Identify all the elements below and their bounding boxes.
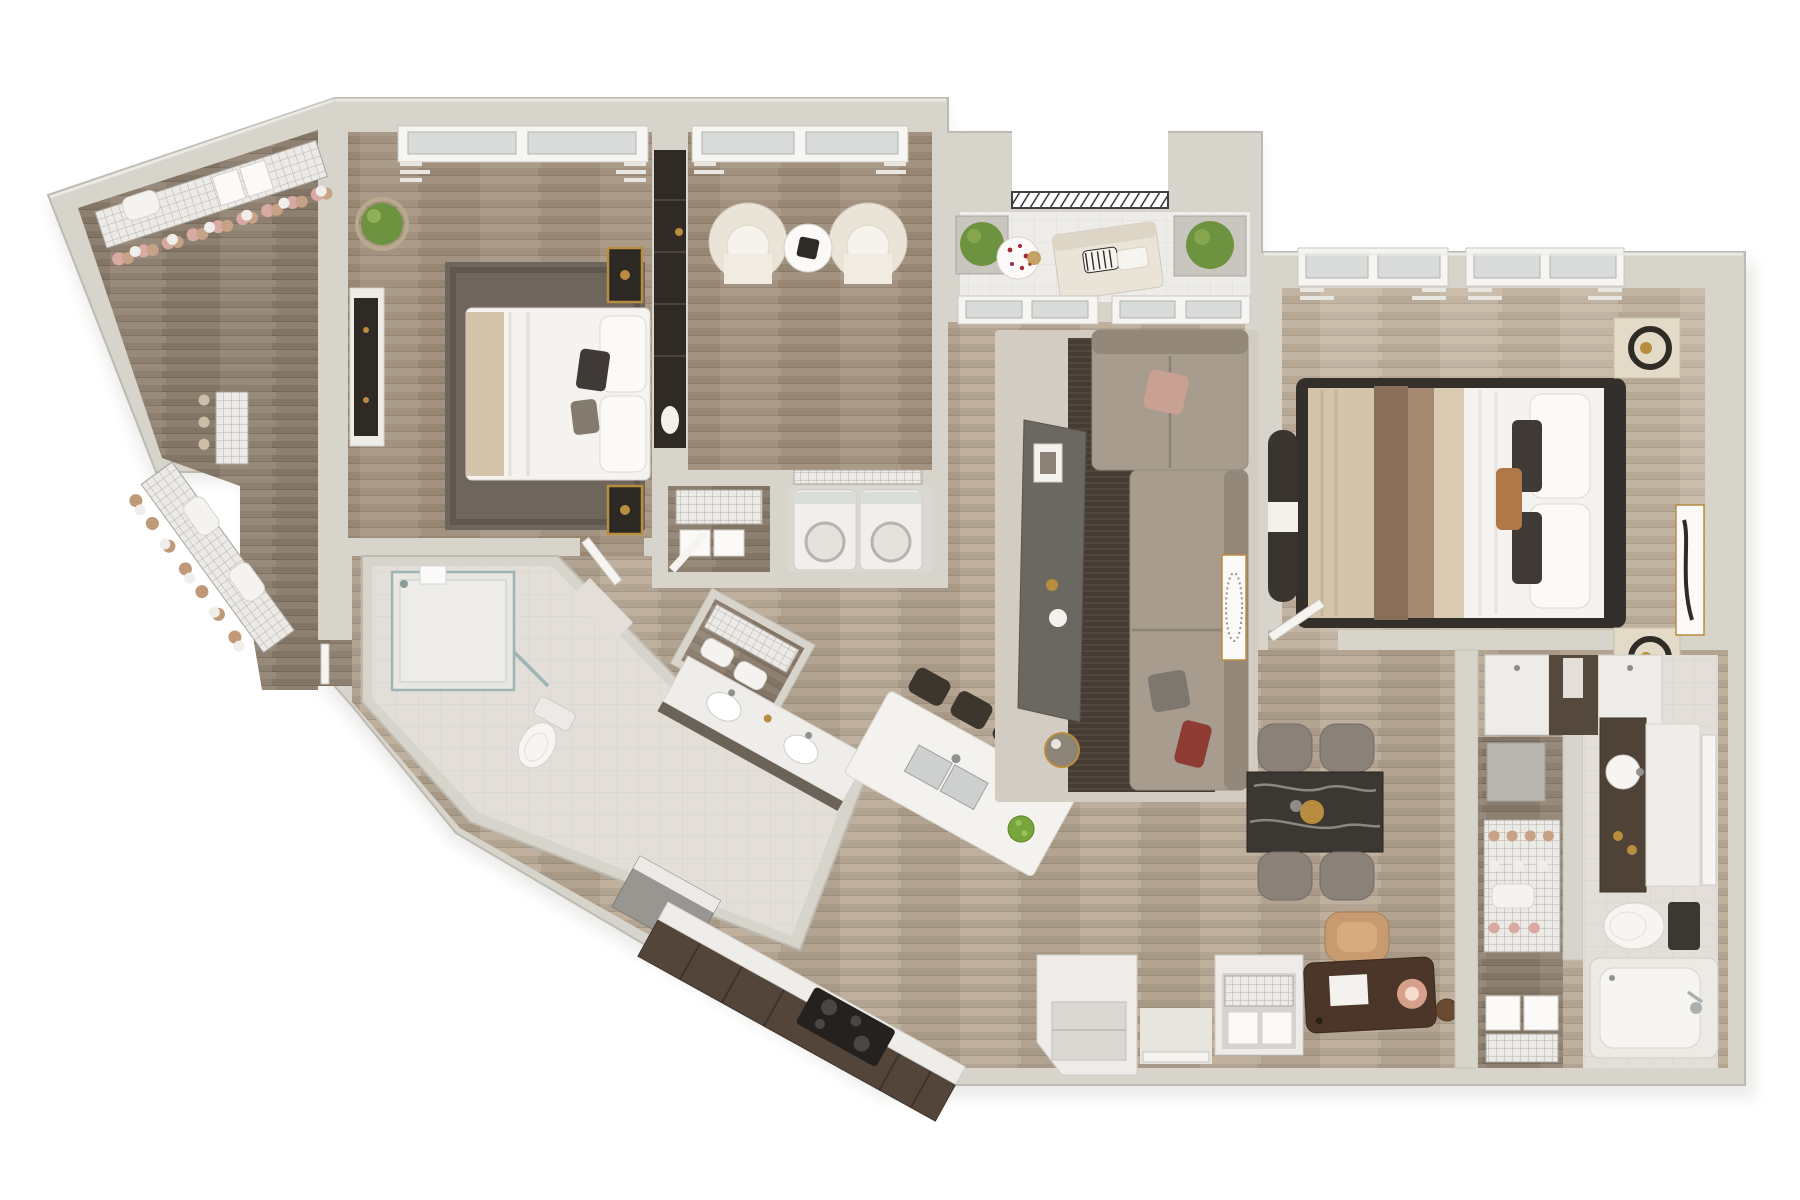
loveseat-cushion	[1117, 247, 1149, 271]
washer	[794, 490, 856, 570]
storage-box-b	[714, 530, 744, 556]
bath2-vanity	[1600, 718, 1716, 892]
utility-gray-box	[1487, 743, 1545, 801]
tub-drain	[1609, 975, 1615, 981]
wardrobe-decor	[661, 406, 679, 434]
right-service-block	[1455, 650, 1718, 1068]
closet2-drawer-2	[1524, 996, 1558, 1030]
bed1-accent-pillow-1	[575, 348, 610, 392]
dining-chair-top-left	[1258, 724, 1312, 772]
console-decor-gold	[1046, 579, 1058, 591]
bench-throw	[1268, 502, 1298, 532]
dining-centerpiece	[1300, 800, 1324, 824]
balcony-shrub-right	[1186, 221, 1234, 269]
desk-chair-seat	[1337, 922, 1377, 952]
dryer-door	[872, 523, 910, 561]
bed1-foot-throw	[466, 312, 504, 476]
bedroom2-framed-art	[1676, 505, 1704, 635]
vanity2-soap-1	[1613, 831, 1623, 841]
cabinet-b-knob	[1627, 665, 1633, 671]
bedroom1-media-dresser	[354, 298, 378, 436]
decor-bowl	[1027, 251, 1041, 265]
vanity2-round-sink	[1606, 755, 1640, 789]
toilet2-tank	[1668, 902, 1700, 950]
tub-faucet	[1690, 1002, 1702, 1014]
leaning-art	[1222, 555, 1246, 660]
potted-plant	[361, 203, 403, 245]
closet-right-drawer-1	[1228, 1012, 1258, 1044]
dryer	[860, 490, 922, 570]
washer-controls	[794, 492, 856, 504]
bed2-satin-throw-1	[1374, 386, 1408, 620]
console-decor-bowl	[1049, 609, 1067, 627]
living-room	[958, 296, 1258, 802]
toilet2-bowl	[1604, 903, 1664, 949]
media-console	[1018, 420, 1086, 722]
dining-chair-bottom-right	[1320, 852, 1374, 900]
sofa-back-top	[1092, 330, 1248, 354]
dining-chair-bottom-left	[1258, 852, 1312, 900]
floor-plan-rendering	[0, 0, 1800, 1200]
shrub-highlight	[967, 229, 981, 243]
chair-front	[724, 254, 772, 284]
bed2-rust-pillow	[1496, 468, 1522, 530]
plant-highlight	[367, 209, 381, 223]
living-window-left	[958, 296, 1098, 324]
bed2-satin-throw-2	[1408, 388, 1434, 618]
entry-door-leaf	[1143, 1052, 1209, 1062]
niche-lamp-bottom	[620, 505, 630, 515]
closet2-drawer-1	[1486, 996, 1520, 1030]
floor-plan-stage	[0, 0, 1800, 1200]
den-wardrobe	[654, 150, 686, 448]
block-mid-wall	[1563, 700, 1583, 960]
tub-basin	[1600, 968, 1700, 1048]
vanity2-counter	[1600, 718, 1646, 892]
dryer-controls	[860, 492, 922, 504]
bed1-pillow-2	[600, 396, 646, 472]
vanity2-soap-2	[1627, 845, 1637, 855]
shower-pan	[400, 580, 506, 682]
sofa-pillow-pink	[1142, 368, 1189, 415]
bed2-cream-band	[1434, 388, 1464, 618]
dining-cup	[1290, 800, 1302, 812]
closet2-pillow	[1492, 884, 1534, 908]
console-art-image	[1040, 452, 1056, 474]
shrub-highlight-2	[1194, 229, 1210, 245]
shower-drain	[400, 580, 408, 588]
closet2-shoe-basket	[1486, 1034, 1558, 1062]
vanity2-faucet	[1636, 768, 1644, 776]
toilet-2	[1604, 902, 1700, 950]
bed1-accent-pillow-2	[570, 399, 600, 436]
closet-right-basket	[1225, 976, 1293, 1006]
nightstand-top	[1614, 318, 1680, 378]
block-west-wall	[1455, 650, 1478, 1068]
vanity2-cabinet-side	[1646, 724, 1700, 886]
living-side-table	[1045, 733, 1079, 767]
wardrobe-deco-gold	[675, 228, 683, 236]
washer-door	[806, 523, 844, 561]
sofa-pillow-gray	[1147, 669, 1191, 713]
dresser-knob-2	[363, 397, 369, 403]
bath2-door-gap	[1563, 658, 1583, 698]
storage-wire-unit	[676, 490, 762, 524]
bath2-mirror	[1702, 735, 1716, 885]
balcony-railing	[1012, 192, 1168, 208]
living-window-right	[1112, 296, 1250, 324]
side-table-decor	[1051, 739, 1061, 749]
cabinet-a-knob	[1514, 665, 1520, 671]
closet-right-drawer-2	[1262, 1012, 1292, 1044]
chair-front-2	[844, 254, 892, 284]
bathtub	[1590, 958, 1718, 1058]
bed2-foot-blanket	[1308, 388, 1374, 618]
dining-chair-top-right	[1320, 724, 1374, 772]
niche-lamp-top	[620, 270, 630, 280]
bed-1	[466, 308, 650, 480]
closet1-door-leaf	[321, 644, 329, 684]
bed-2	[1296, 378, 1626, 628]
den-table-tray	[796, 236, 820, 260]
desk-paper	[1329, 974, 1369, 1006]
dresser-knob-1	[363, 327, 369, 333]
den-floor	[688, 132, 932, 470]
balcony-open-sky	[1012, 116, 1168, 196]
closet1-wire-shelf-side	[216, 392, 248, 464]
entry-closet-left	[1037, 955, 1137, 1075]
entry-closet-right	[1215, 955, 1303, 1055]
laundry-wire-shelf	[794, 470, 922, 484]
mirror-decor-top	[1640, 342, 1652, 354]
shower-shelf	[420, 566, 446, 584]
balcony-loveseat	[1052, 221, 1164, 301]
